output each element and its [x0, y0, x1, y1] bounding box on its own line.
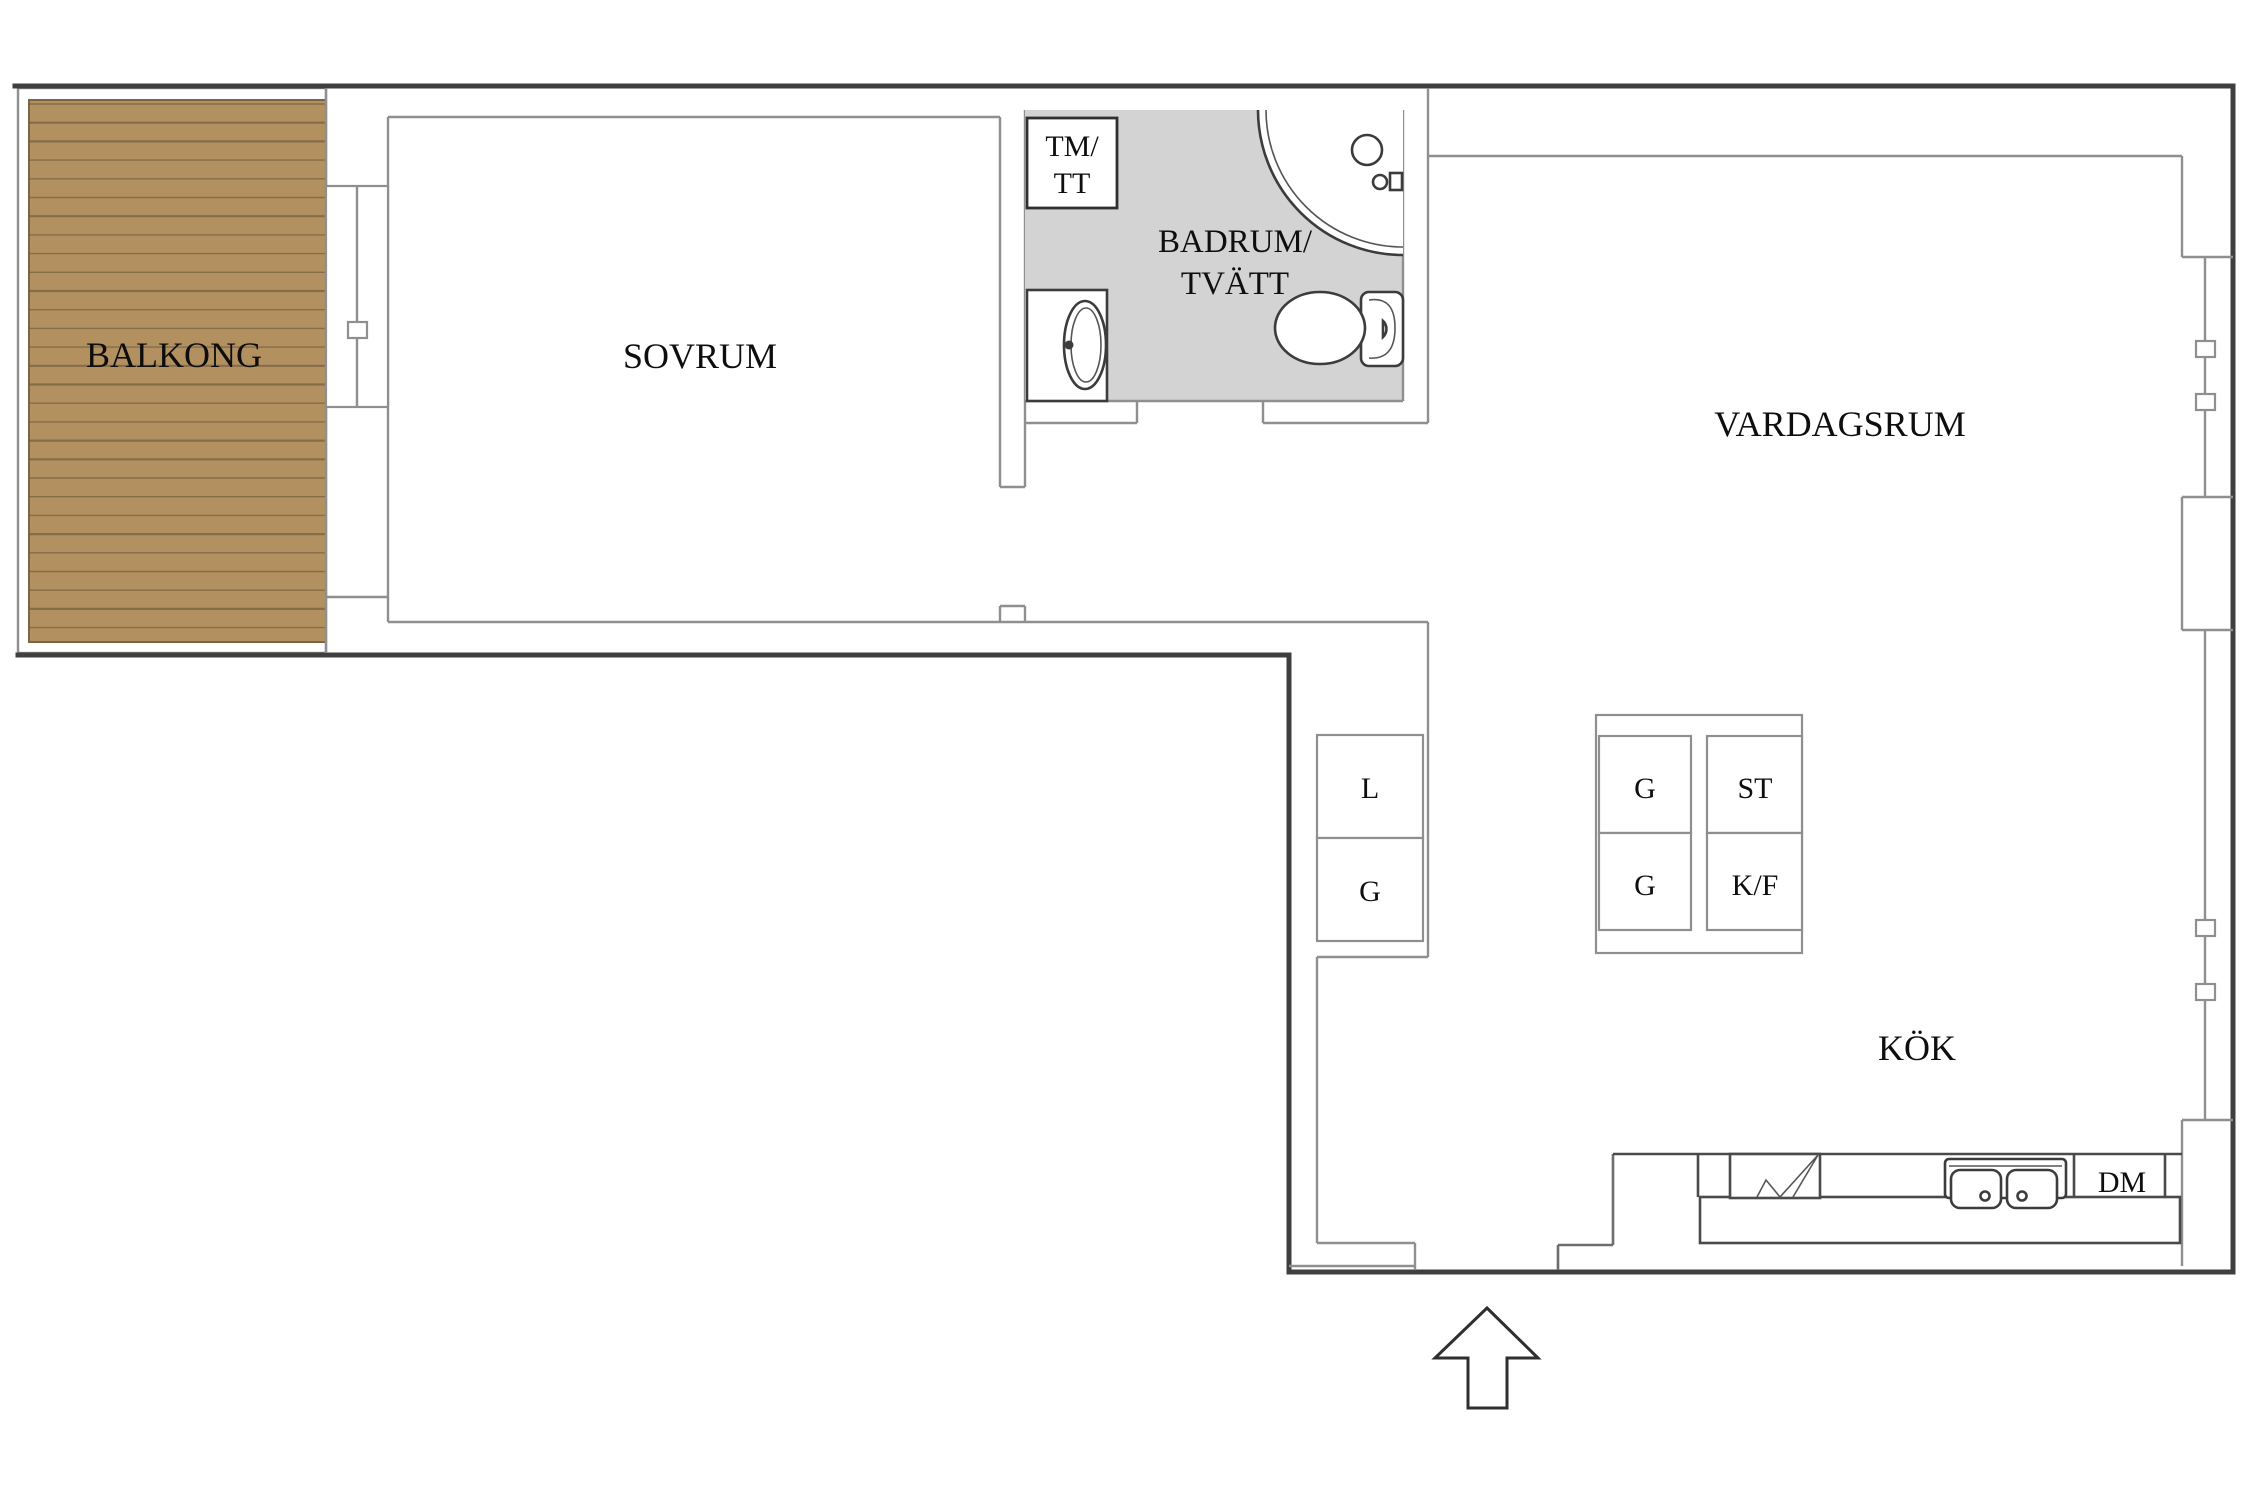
window-upper-handle-2	[2196, 394, 2215, 410]
bathroom-label-line2: TVÄTT	[1181, 266, 1289, 302]
kitchen-counter: DM	[1613, 1154, 2182, 1243]
entrance-east-jamb	[1558, 1154, 1613, 1270]
window-lower-handle-2	[2196, 984, 2215, 1000]
balcony-label: BALKONG	[86, 335, 262, 375]
storage-unit: G ST G K/F	[1596, 715, 1802, 953]
hall-closet-bottom-label: G	[1359, 875, 1381, 908]
hall-west-wall-inner	[1317, 957, 1415, 1270]
hall-closet-top-label: L	[1361, 772, 1379, 805]
dishwasher-slot: DM	[2074, 1154, 2165, 1199]
window-lower-handle-1	[2196, 920, 2215, 936]
hall-kitchen-walls	[1289, 622, 1613, 1270]
window-upper-frame	[2182, 257, 2233, 497]
bathroom-label-line1: BADRUM/	[1158, 224, 1313, 260]
bathroom: TM/ TT BADRUM/ TVÄTT	[1025, 88, 1428, 423]
entrance-arrow-icon	[1435, 1308, 1538, 1408]
window-upper	[2182, 257, 2233, 497]
balcony: BALKONG	[18, 88, 326, 653]
living-room-label: VARDAGSRUM	[1714, 404, 1965, 444]
bathroom-sink-icon	[1027, 290, 1107, 401]
dishwasher-label: DM	[2098, 1166, 2146, 1199]
toilet-icon	[1275, 292, 1403, 366]
unit-label-bottom-left: G	[1634, 869, 1656, 902]
stove-icon	[1730, 1154, 1820, 1198]
bedroom-door-jamb	[1000, 606, 1025, 622]
balcony-door	[326, 186, 388, 407]
living-room: VARDAGSRUM	[1428, 156, 2233, 1266]
kitchen-label: KÖK	[1878, 1028, 1956, 1068]
unit-label-bottom-right: K/F	[1732, 869, 1779, 902]
bedroom-east-wall	[1000, 110, 1025, 487]
balcony-door-handle	[348, 322, 367, 338]
window-lower	[2182, 630, 2233, 1120]
unit-label-top-right: ST	[1737, 772, 1772, 805]
floor-plan: BALKONG SOVRUM TM/ TT	[0, 0, 2250, 1500]
washer-label-line1: TM/	[1045, 130, 1099, 163]
unit-label-top-left: G	[1634, 772, 1656, 805]
counter-front	[1700, 1197, 2180, 1243]
window-upper-handle-1	[2196, 341, 2215, 357]
bathroom-south-wall	[1025, 401, 1428, 423]
bedroom-label: SOVRUM	[623, 336, 777, 376]
washer-label-line2: TT	[1054, 167, 1091, 200]
bedroom-south-step	[326, 597, 388, 622]
hall-closets: L G	[1317, 735, 1423, 941]
window-lower-frame	[2182, 630, 2233, 1120]
kitchen: KÖK DM	[1613, 1028, 2182, 1243]
